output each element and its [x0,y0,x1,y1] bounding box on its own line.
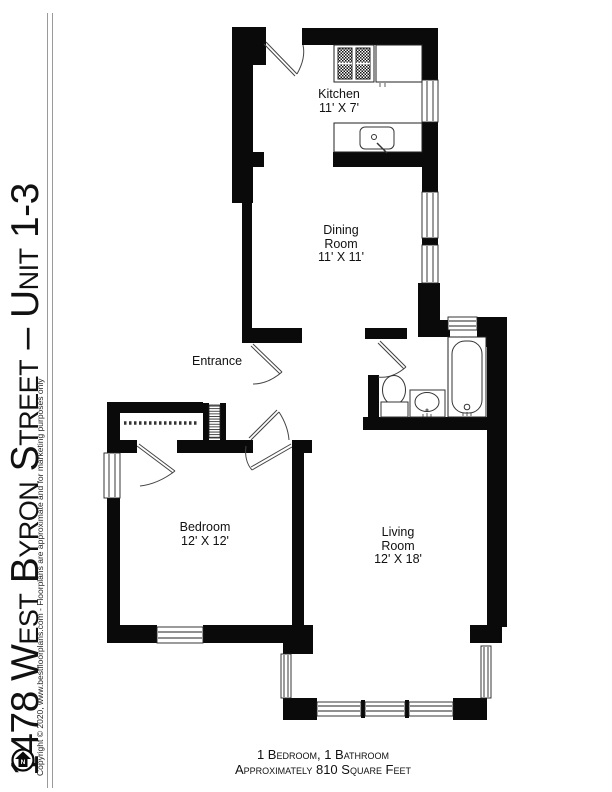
summary-text: 1 Bedroom, 1 Bathroom Approximately 810 … [235,747,411,777]
bathtub [448,337,486,417]
bathroom-door [378,341,406,377]
living-bottom-window-2 [365,702,405,716]
bedroom-bottom-window [157,627,203,643]
living-bottom-window-3 [409,702,453,716]
room-label-dining: Dining Room 11' X 11' [318,224,364,265]
entrance-name: Entrance [192,355,242,369]
dining-name-2: Room [318,238,364,252]
walls [107,27,507,720]
kitchen-window [422,80,438,122]
kitchen-dims: 11' X 7' [318,102,360,116]
bedroom-left-window [104,453,120,498]
summary-area: Approximately 810 Square Feet [235,762,411,777]
living-name-2: Room [374,540,422,554]
closet-bifold-door [209,405,220,438]
bedroom-dims: 12' X 12' [180,535,231,549]
stove [334,45,374,82]
living-bottom-window-1 [317,702,361,716]
bedroom-name: Bedroom [180,521,231,535]
bathroom-sink-vanity [410,390,445,417]
toilet [381,376,408,418]
summary-rooms: 1 Bedroom, 1 Bathroom [235,747,411,762]
living-dims: 12' X 18' [374,553,422,567]
dining-window-2 [422,245,438,283]
floorplan-drawing [0,0,612,792]
hall-door [249,410,289,440]
entry-door [251,344,282,384]
living-right-window [481,646,491,698]
floorplan-page: 1478 West Byron Street – Unit 1-3 Copyri… [0,0,612,792]
living-name-1: Living [374,526,422,540]
living-left-window [281,654,291,698]
room-label-entrance: Entrance [192,355,242,369]
dining-name-1: Dining [318,224,364,238]
kitchen-counter [376,45,422,87]
bathroom-window [448,317,477,330]
room-label-living: Living Room 12' X 18' [374,526,422,567]
kitchen-sink [334,123,422,153]
dining-window-1 [422,192,438,238]
kitchen-door [264,42,304,76]
kitchen-name: Kitchen [318,88,360,102]
room-label-bedroom: Bedroom 12' X 12' [180,521,231,548]
closet-door [137,444,175,486]
room-label-kitchen: Kitchen 11' X 7' [318,88,360,115]
dining-dims: 11' X 11' [318,251,364,265]
